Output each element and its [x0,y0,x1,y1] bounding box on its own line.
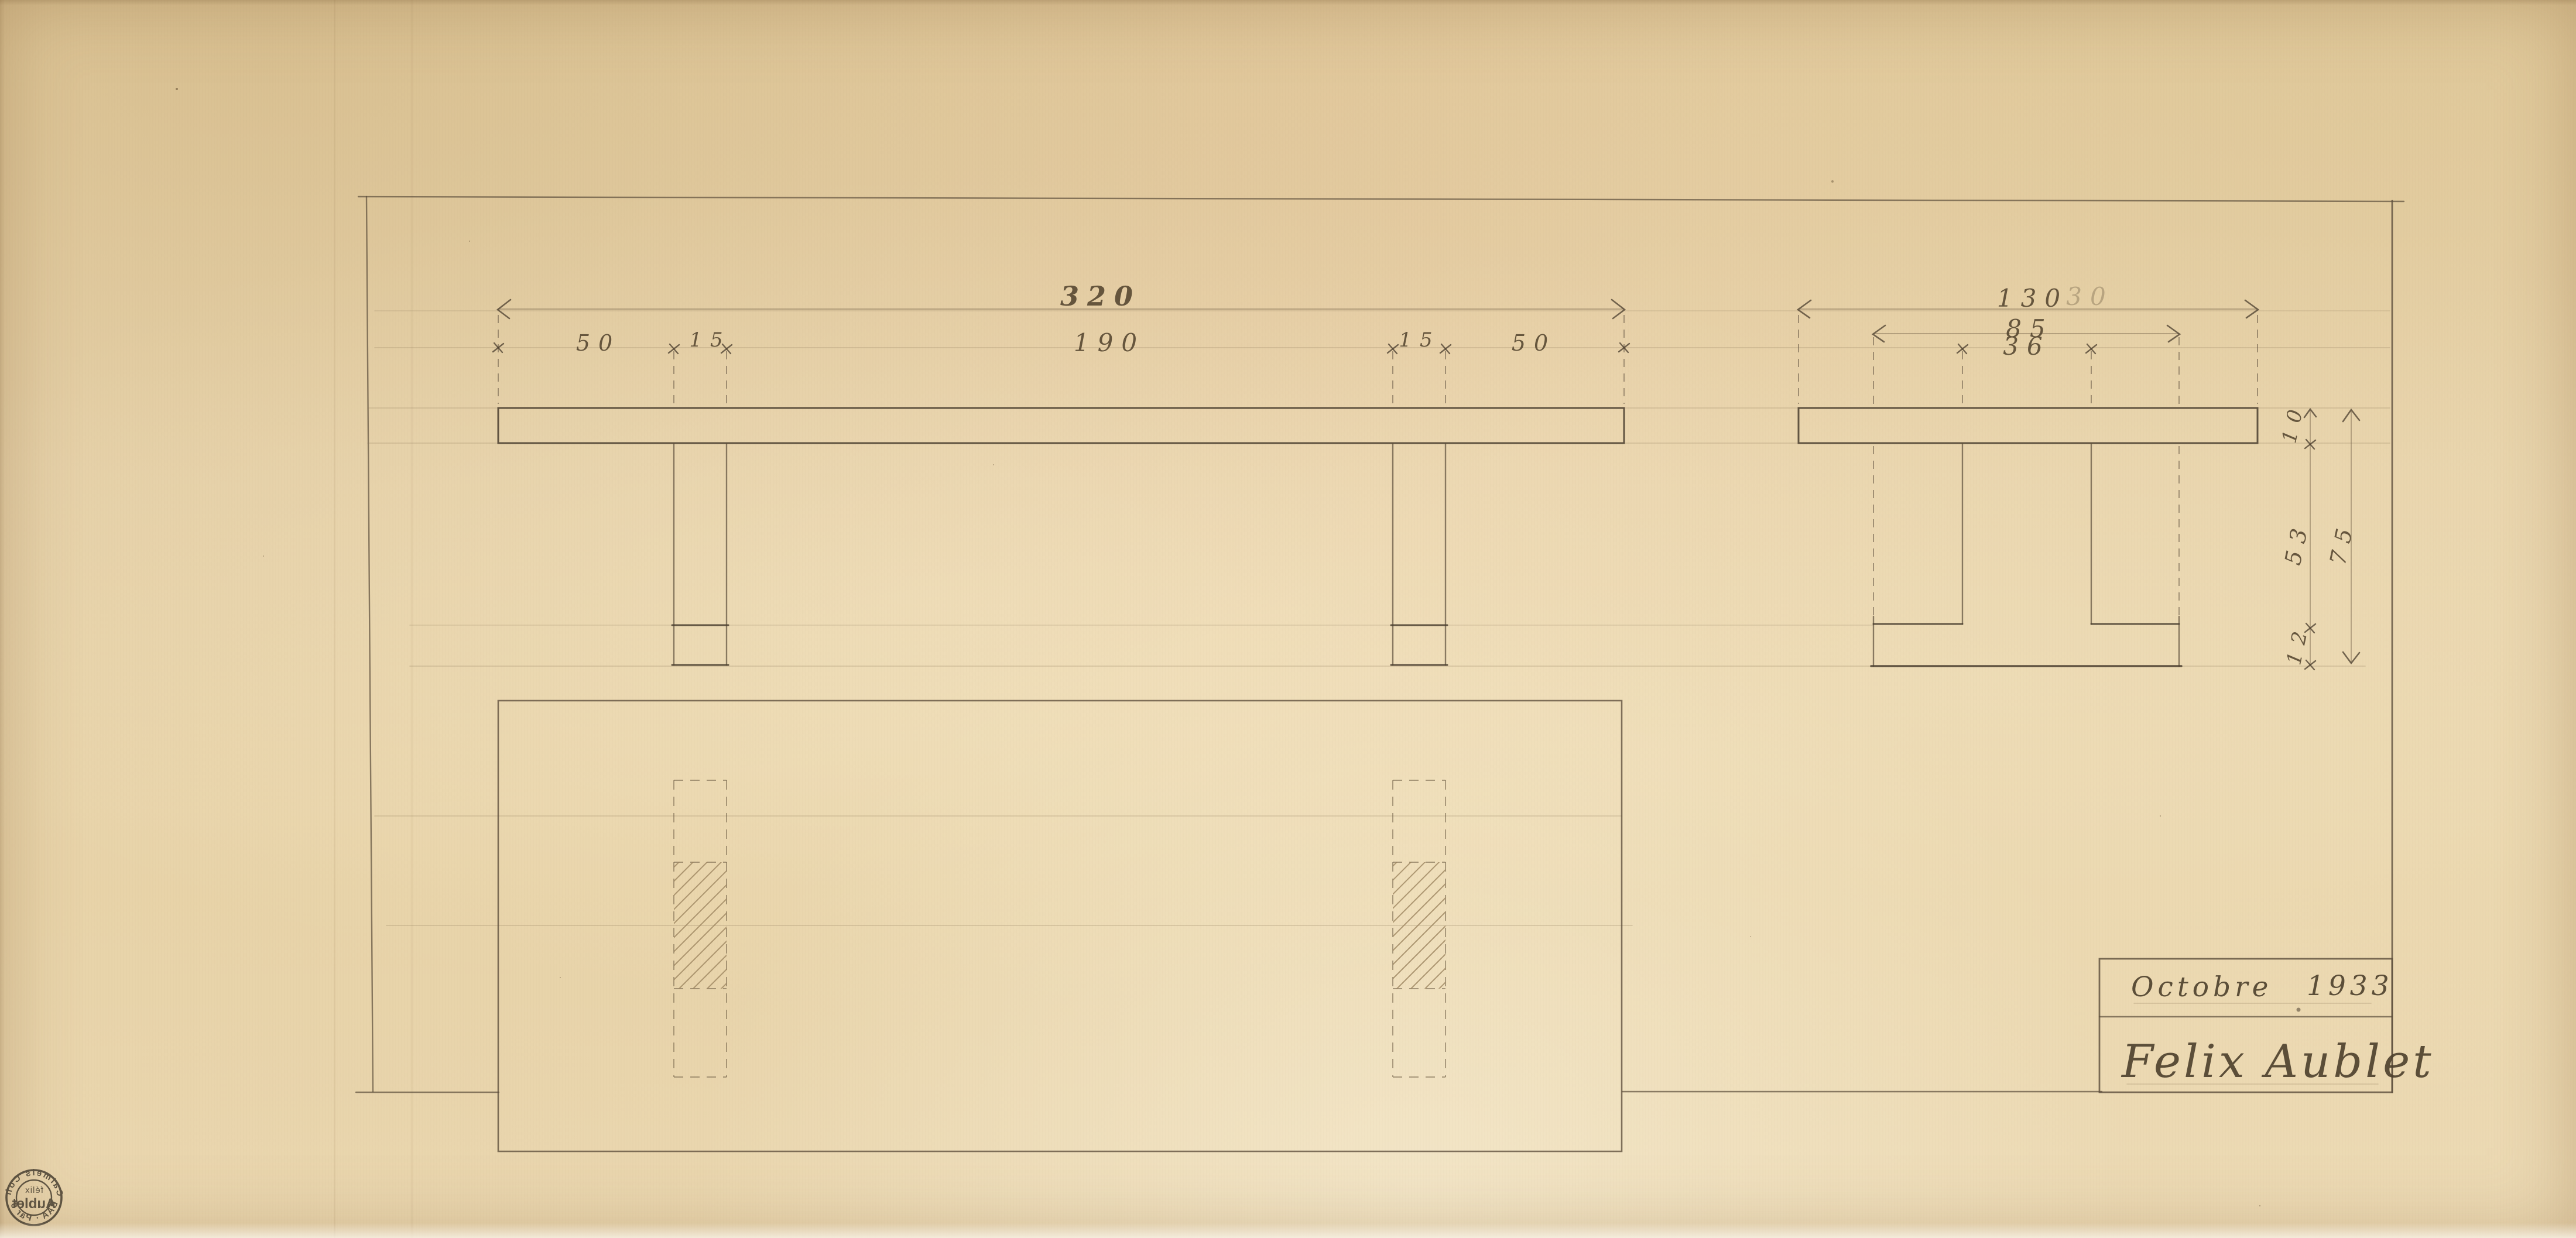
front-elevation [498,408,1624,665]
tabletop-side [1799,408,2258,443]
title-date-month: Octobre [2131,971,2272,1003]
frame-top [358,197,2404,201]
dim-label-depth-ghost: 30 [2066,282,2113,311]
dim-label-overhang-left: 50 [576,330,621,356]
title-date-year: 1933 [2307,970,2393,1002]
construction-lines [368,311,2390,925]
dimension-lines [498,309,2351,665]
leg-section-hatch [674,862,727,989]
frame-left [366,197,373,1092]
plan-view [498,701,1622,1151]
title-signature: Felix Aublet [2121,1035,2434,1088]
dim-label-top-thickness: 10 [2277,400,2309,445]
dim-label-overall: 320 [1060,280,1141,312]
frame-border [356,197,2404,1092]
side-foot [1871,616,2181,666]
stamp-center-small: félix [25,1185,43,1195]
plan-leg-right [1393,780,1445,1077]
stamp-center-large: Aublet [12,1196,56,1212]
side-elevation [1799,408,2258,666]
plan-leg-left [674,780,727,1077]
dim-label-leg-right: 15 [1399,328,1440,352]
dim-label-depth: 130 [1997,284,2068,313]
dim-label-leg-height: 53 [2280,518,2314,567]
leg-section-hatch [1393,862,1445,989]
dim-label-leg-plate: 36 [2003,332,2050,361]
drawing-sheet: 320 190 50 15 15 50 130 30 85 36 10 53 1… [0,0,2576,1238]
tabletop-plan [498,701,1622,1151]
ink-dot [2297,1008,2301,1012]
dimension-marks [493,300,2359,670]
technical-drawing: 320 190 50 15 15 50 130 30 85 36 10 53 1… [0,0,2576,1238]
tabletop-front [498,408,1624,443]
title-block: Octobre 1933 Felix Aublet [2099,959,2434,1092]
dim-label-overhang-right: 50 [1512,330,1556,356]
dim-label-total-height: 75 [2325,518,2359,567]
front-leg-right [1391,444,1447,665]
dim-label-leg-left: 15 [689,328,731,352]
dim-label-span: 190 [1074,328,1145,357]
extension-lines [498,315,2258,620]
dim-label-foot-height: 12 [2282,622,2314,667]
front-leg-left [672,444,728,665]
collection-stamp: Calmels Coh BAA · Par 9 félix Aublet [3,1168,65,1225]
